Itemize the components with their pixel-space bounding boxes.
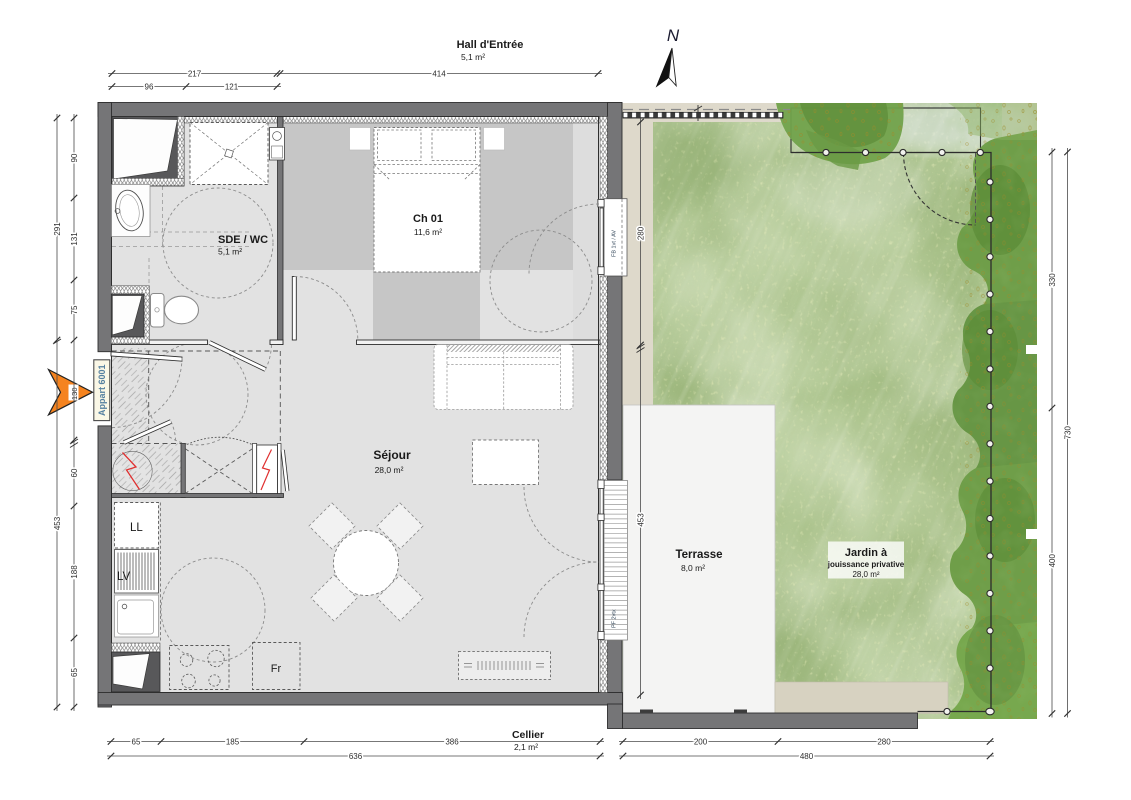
svg-text:291: 291	[53, 222, 62, 236]
svg-text:453: 453	[53, 516, 62, 530]
svg-text:LV: LV	[117, 571, 131, 583]
svg-text:Ch 01: Ch 01	[413, 213, 443, 225]
svg-text:90: 90	[70, 153, 79, 162]
svg-text:LL: LL	[130, 522, 143, 534]
svg-text:SDE / WC: SDE / WC	[218, 234, 268, 246]
svg-text:N: N	[667, 26, 680, 45]
svg-text:330: 330	[1048, 273, 1057, 287]
svg-text:Appart 6001: Appart 6001	[97, 364, 107, 416]
svg-text:Cellier: Cellier	[512, 729, 544, 741]
svg-text:280: 280	[636, 226, 645, 240]
svg-text:PF 2vtx: PF 2vtx	[612, 609, 618, 628]
svg-text:131: 131	[70, 232, 79, 246]
svg-text:386: 386	[445, 737, 459, 746]
svg-text:5,1 m²: 5,1 m²	[218, 247, 242, 257]
svg-text:11,6 m²: 11,6 m²	[414, 227, 442, 237]
svg-text:Terrasse: Terrasse	[675, 549, 722, 561]
svg-text:Fr: Fr	[271, 663, 282, 675]
svg-text:188: 188	[70, 565, 79, 579]
svg-text:5,1 m²: 5,1 m²	[461, 52, 485, 62]
svg-text:60: 60	[70, 468, 79, 477]
svg-text:75: 75	[70, 305, 79, 314]
svg-text:Hall d'Entrée: Hall d'Entrée	[457, 39, 524, 51]
svg-text:453: 453	[636, 513, 645, 527]
svg-text:130: 130	[70, 387, 79, 400]
svg-text:200: 200	[694, 737, 708, 746]
svg-text:28,0 m²: 28,0 m²	[375, 465, 404, 475]
svg-text:280: 280	[877, 737, 891, 746]
svg-text:Jardin à: Jardin à	[845, 547, 888, 559]
svg-text:217: 217	[188, 69, 202, 78]
svg-text:jouissance privative: jouissance privative	[827, 560, 905, 569]
svg-text:65: 65	[70, 668, 79, 677]
svg-text:2,1 m²: 2,1 m²	[514, 742, 538, 752]
svg-text:121: 121	[225, 82, 239, 91]
svg-text:414: 414	[432, 69, 446, 78]
svg-text:636: 636	[349, 752, 363, 761]
svg-text:96: 96	[145, 82, 154, 91]
svg-text:65: 65	[132, 737, 141, 746]
svg-text:28,0 m²: 28,0 m²	[852, 570, 879, 579]
svg-text:185: 185	[226, 737, 240, 746]
svg-text:8,0 m²: 8,0 m²	[681, 563, 705, 573]
svg-text:Séjour: Séjour	[373, 448, 411, 462]
svg-text:730: 730	[1063, 426, 1072, 440]
svg-text:480: 480	[800, 752, 814, 761]
svg-text:FB 1vt / AV: FB 1vt / AV	[612, 230, 618, 257]
svg-text:400: 400	[1048, 554, 1057, 568]
